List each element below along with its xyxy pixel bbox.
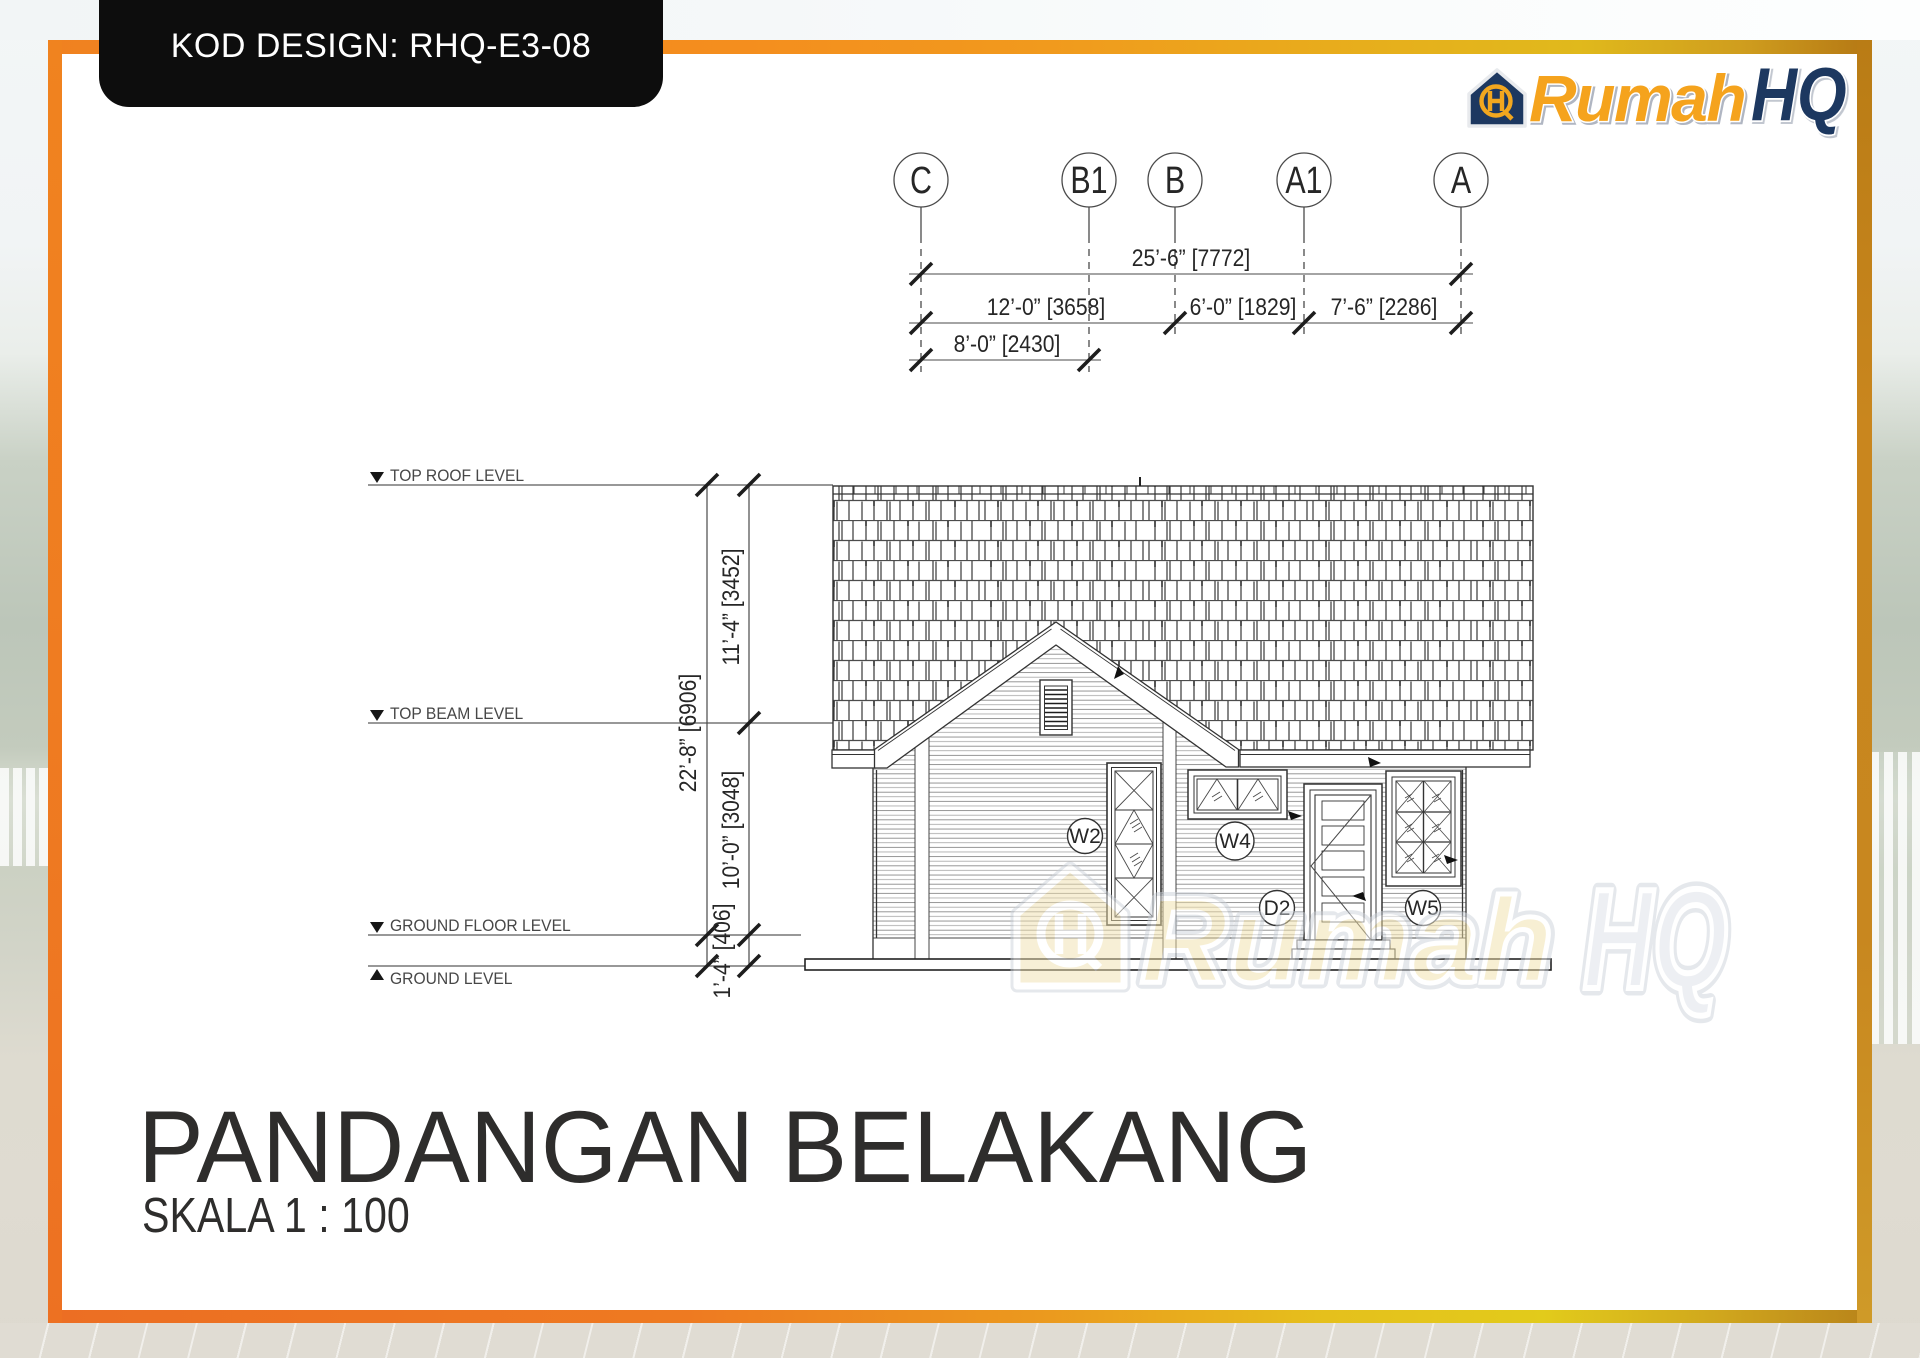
svg-text:10’-0” [3048]: 10’-0” [3048] [718, 771, 745, 890]
svg-text:8’-0” [2430]: 8’-0” [2430] [954, 331, 1061, 358]
svg-text:TOP BEAM LEVEL: TOP BEAM LEVEL [390, 704, 523, 723]
svg-text:HQ: HQ [1751, 52, 1847, 136]
svg-text:C: C [910, 160, 932, 202]
svg-text:A: A [1451, 160, 1471, 202]
svg-text:7’-6” [2286]: 7’-6” [2286] [1331, 294, 1438, 321]
svg-text:W2: W2 [1069, 825, 1101, 848]
svg-text:22’-8” [6906]: 22’-8” [6906] [675, 674, 702, 793]
svg-text:12’-0” [3658]: 12’-0” [3658] [987, 294, 1106, 321]
svg-text:GROUND FLOOR LEVEL: GROUND FLOOR LEVEL [390, 916, 571, 935]
svg-text:W4: W4 [1219, 830, 1251, 853]
svg-text:TOP ROOF LEVEL: TOP ROOF LEVEL [390, 466, 524, 485]
svg-text:Rumah: Rumah [1529, 61, 1745, 135]
svg-text:B1: B1 [1070, 160, 1107, 202]
svg-text:Rumah: Rumah [1140, 872, 1553, 1008]
svg-text:11’-4” [3452]: 11’-4” [3452] [718, 549, 745, 666]
svg-text:B: B [1165, 160, 1185, 202]
svg-text:6’-0” [1829]: 6’-0” [1829] [1190, 294, 1297, 321]
svg-text:HQ: HQ [1583, 859, 1728, 1018]
svg-text:A1: A1 [1285, 160, 1322, 202]
svg-text:1’-4” [406]: 1’-4” [406] [709, 903, 736, 998]
svg-text:25’-6” [7772]: 25’-6” [7772] [1132, 245, 1251, 272]
svg-text:GROUND LEVEL: GROUND LEVEL [390, 969, 513, 988]
